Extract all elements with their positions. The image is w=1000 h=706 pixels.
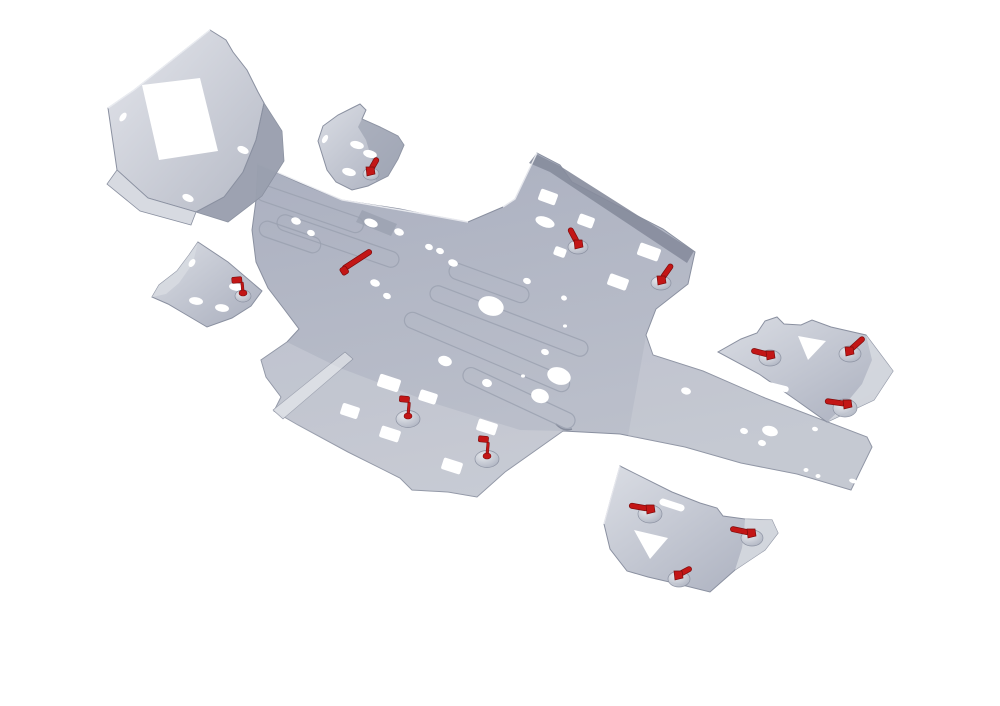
mounting-hole xyxy=(861,483,870,489)
mounting-hole xyxy=(804,468,809,472)
front-bumper-plate xyxy=(107,30,284,225)
mounting-hole xyxy=(563,324,567,327)
skid-plate-kit xyxy=(107,30,893,592)
skid-plate-kit-image xyxy=(0,0,1000,706)
mounting-hole xyxy=(816,474,821,478)
mounting-hole xyxy=(731,462,740,470)
atv-skid-plate-render xyxy=(0,0,1000,706)
front-a-arm-guard-right xyxy=(318,104,404,190)
front-a-arm-guard-left xyxy=(152,242,262,327)
mounting-hole xyxy=(521,374,525,377)
